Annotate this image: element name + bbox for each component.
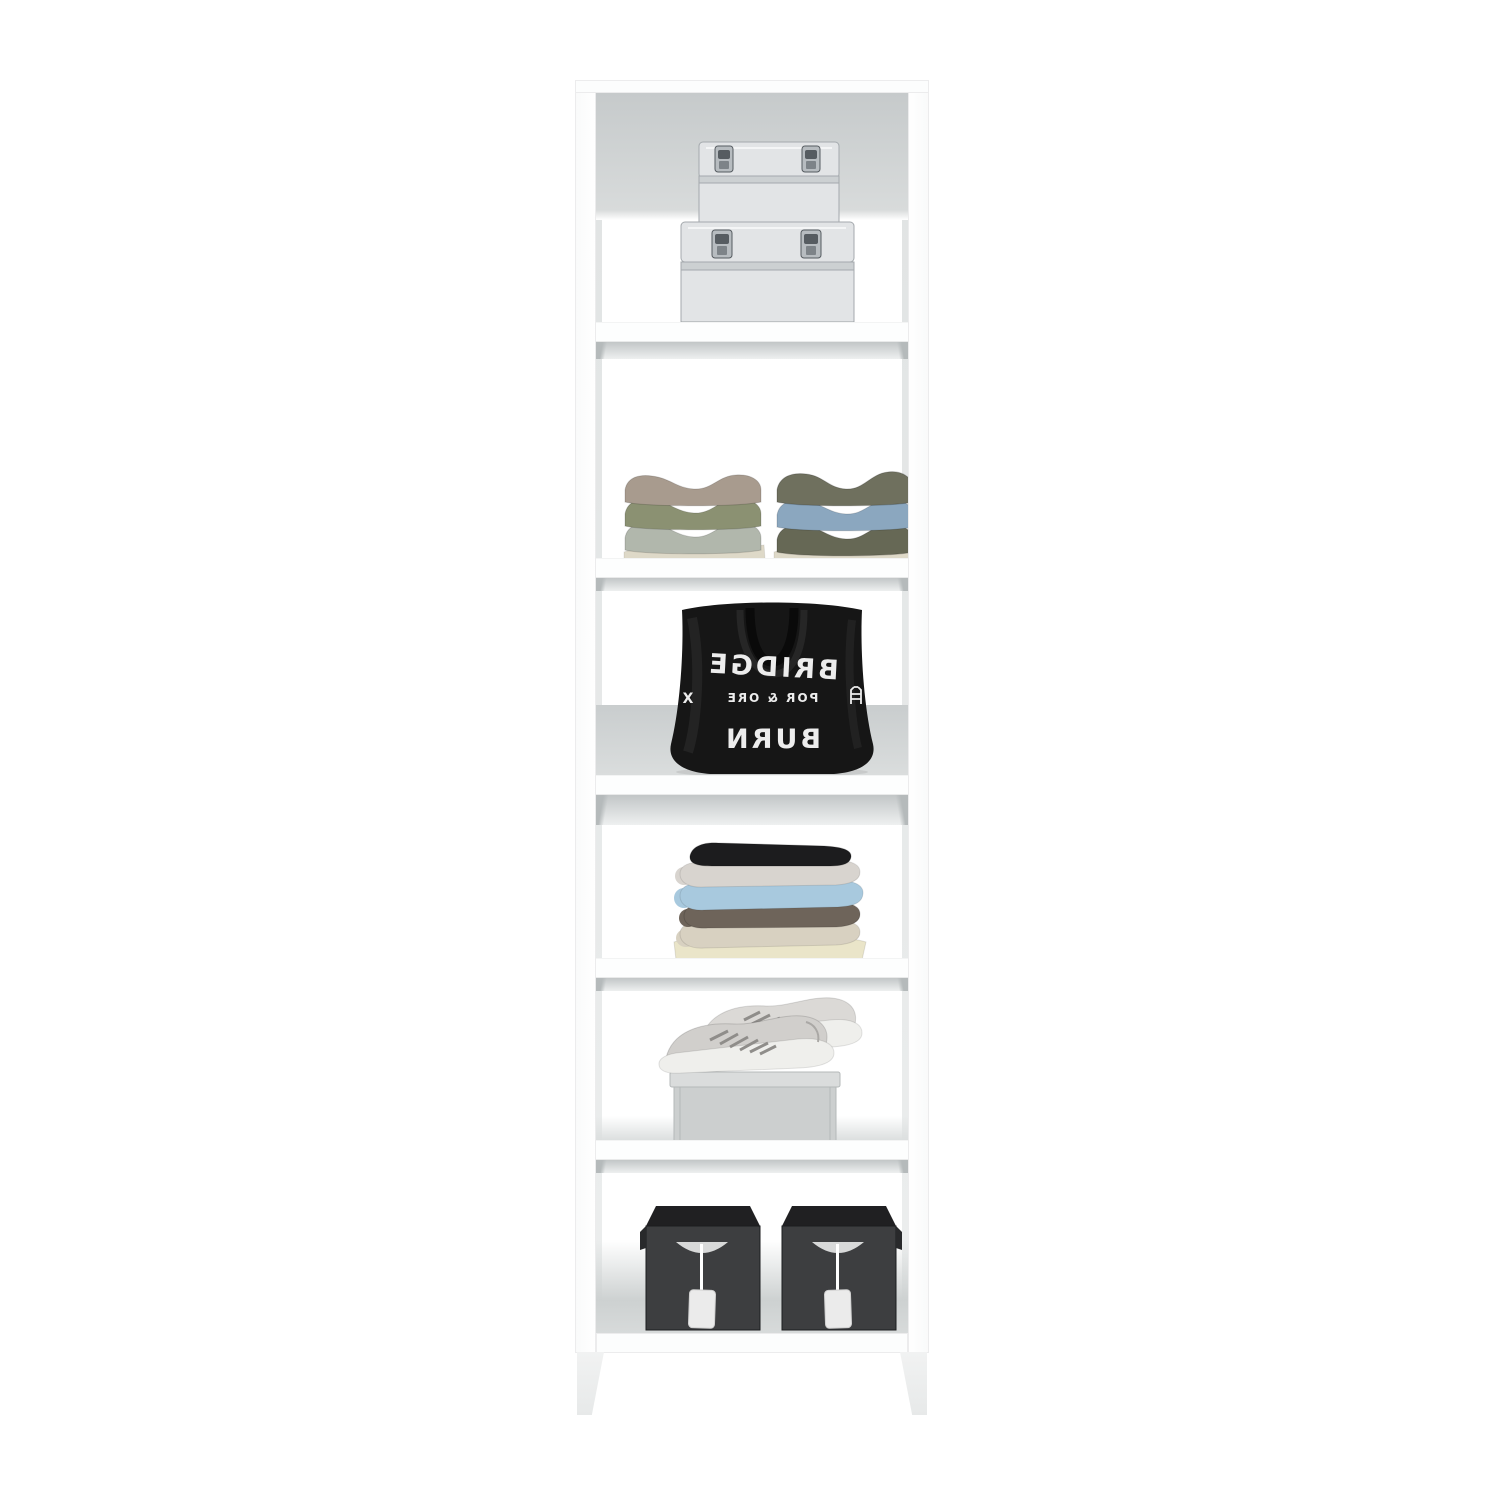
bin-hang-tag bbox=[688, 1290, 715, 1329]
shelf-2-underside bbox=[596, 578, 908, 591]
shelf-2 bbox=[590, 558, 914, 578]
clothes-layer-black bbox=[690, 843, 851, 866]
shelf-5-underside bbox=[596, 1160, 908, 1173]
shelf-4-underside bbox=[596, 978, 908, 991]
shoe-box bbox=[670, 1072, 840, 1142]
metal-storage-cases bbox=[676, 138, 856, 324]
closet-tower: BRIDGE POR & ORE X BURN bbox=[575, 80, 929, 1353]
folded-clothes-stack bbox=[664, 838, 880, 962]
top-panel bbox=[575, 80, 929, 93]
tote-print-middle: POR & ORE bbox=[726, 691, 819, 705]
sneaker-front bbox=[659, 1016, 834, 1073]
storage-bin bbox=[640, 1202, 766, 1334]
case-latch bbox=[715, 146, 733, 172]
large-case bbox=[681, 222, 854, 323]
tower-interior: BRIDGE POR & ORE X BURN bbox=[596, 80, 908, 1353]
case-latch bbox=[802, 146, 820, 172]
side-panel-left bbox=[575, 80, 596, 1353]
bin-tag-cord bbox=[700, 1244, 703, 1292]
shelf-4 bbox=[590, 958, 914, 978]
folded-sweater-stacks bbox=[618, 468, 920, 560]
shelf-1-underside bbox=[596, 342, 908, 359]
bin-hang-tag bbox=[824, 1290, 851, 1329]
shelf-5 bbox=[590, 1140, 914, 1160]
leg-left bbox=[577, 1352, 604, 1415]
shelf-1 bbox=[590, 322, 914, 342]
leg-right bbox=[900, 1352, 927, 1415]
studio-backdrop: BRIDGE POR & ORE X BURN bbox=[0, 0, 1500, 1500]
sweater-stack-right bbox=[774, 472, 915, 559]
tote-print-x-mark: X bbox=[682, 691, 693, 707]
tote-bag: BRIDGE POR & ORE X BURN bbox=[662, 596, 884, 778]
base-panel bbox=[596, 1333, 908, 1353]
side-panel-right bbox=[908, 80, 929, 1353]
small-case bbox=[699, 142, 839, 228]
shelf-3 bbox=[590, 775, 914, 795]
storage-bin bbox=[776, 1202, 902, 1334]
case-latch bbox=[712, 230, 732, 258]
bin-tag-cord bbox=[836, 1244, 839, 1292]
tote-print-bottom: BURN bbox=[723, 724, 821, 755]
case-latch bbox=[801, 230, 821, 258]
shelf-3-underside bbox=[596, 795, 908, 825]
sneakers-on-shoe-box bbox=[654, 988, 866, 1144]
sweater-stack-left bbox=[624, 475, 765, 559]
